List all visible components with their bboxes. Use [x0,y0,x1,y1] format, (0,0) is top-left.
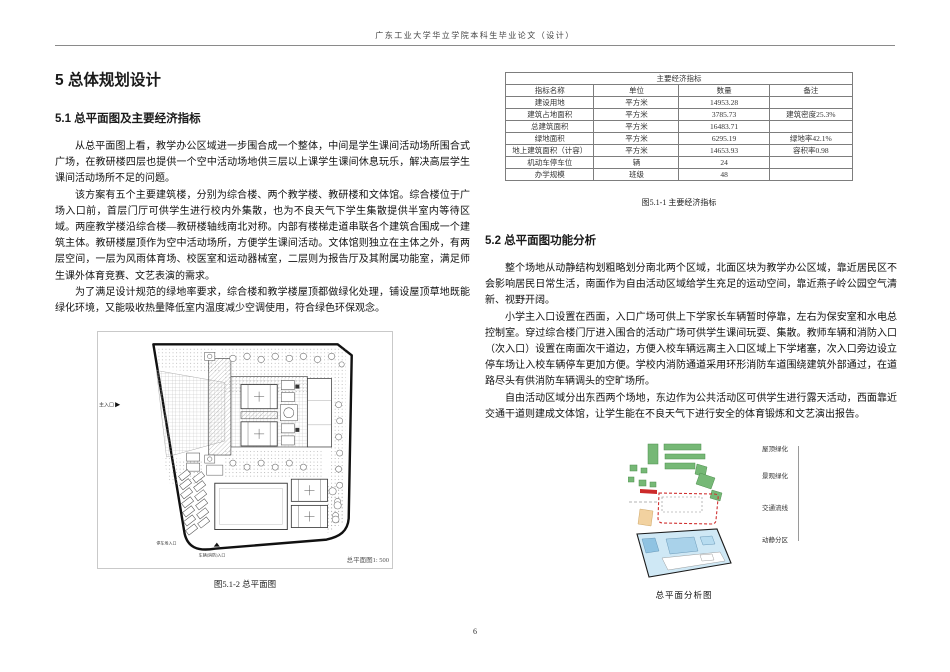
analysis-layers-drawing [628,437,738,587]
analysis-caption: 总平面分析图 [628,589,740,601]
table-cell: 6295.19 [679,133,769,145]
right-column: 主要经济指标 指标名称单位数量备注 建设用地平方米14953.28建筑占地面积平… [485,62,897,601]
table-cell: 3785.73 [679,109,769,121]
paragraph: 自由活动区域分出东西两个场地，东边作为公共活动区可供学生进行露天活动，西面靠近交… [485,391,897,423]
diagram-layer-label: 动静分区 [762,534,788,544]
siteplan-drawing: 主入口 停车场入口 车辆(消防)入口 [98,332,392,568]
diagram-layer-label: 交通流线 [762,502,788,512]
table-row: 地上建筑面积（计容）平方米14653.93容积率0.98 [506,145,853,157]
fire-lane-loop [658,493,718,524]
table-cell: 办学规模 [506,169,594,181]
table-cell: 平方米 [594,145,679,157]
east-building [307,379,331,447]
paragraph: 小学主入口设置在西面，入口广场可供上下学家长车辆暂时停靠，左右为保安室和水电总控… [485,310,897,391]
thesis-page: 广东工业大学华立学院本科生毕业论文（设计） 5 总体规划设计 5.1 总平面图及… [0,0,950,672]
table-header-cell: 数量 [679,85,769,97]
table-cell: 机动车停车位 [506,157,594,169]
table-header-cell: 指标名称 [506,85,594,97]
paragraph: 该方案有五个主要建筑楼，分别为综合楼、两个教学楼、教研楼和文体馆。综合楼位于广场… [55,188,470,285]
header-divider [55,45,895,46]
table-cell: 绿地率42.1% [769,133,852,145]
table-cell: 地上建筑面积（计容） [506,145,594,157]
siteplan-figure: 主入口 停车场入口 车辆(消防)入口 总平面图1: 500 [97,331,393,569]
parking-entrance-label: 停车场入口 [156,540,176,546]
main-entrance-arrow [115,402,120,407]
diagram-layer-label: 景观绿化 [762,470,788,480]
table-body: 主要经济指标 指标名称单位数量备注 建设用地平方米14953.28建筑占地面积平… [506,73,853,181]
parking-zone-blob [638,509,653,526]
table-cell: 14953.28 [679,97,769,109]
table-cell: 绿地面积 [506,133,594,145]
diagram-layer-label: 屋顶绿化 [762,443,788,453]
table-cell: 平方米 [594,121,679,133]
table-cell: 16483.71 [679,121,769,133]
table-cell [769,169,852,181]
table-cell: 24 [679,157,769,169]
section-5-2-heading: 5.2 总平面图功能分析 [485,232,897,248]
table-cell [769,97,852,109]
table-cell: 建筑占地面积 [506,109,594,121]
table-cell: 14653.93 [679,145,769,157]
table-row: 总建筑面积平方米16483.71 [506,121,853,133]
table-cell: 容积率0.98 [769,145,852,157]
table-cell: 48 [679,169,769,181]
table-cell: 平方米 [594,97,679,109]
main-entrance-bar [640,489,657,494]
table-cell: 平方米 [594,109,679,121]
analysis-diagram: 屋顶绿化景观绿化交通流线动静分区 [628,437,803,587]
roof-greening-layer [648,444,707,477]
table-cell: 平方米 [594,133,679,145]
diagram-labels: 屋顶绿化景观绿化交通流线动静分区 [740,437,796,587]
table-cell [769,121,852,133]
left-column: 5 总体规划设计 5.1 总平面图及主要经济指标 从总平面图上看，教学办公区域进… [55,64,470,590]
chapter-title: 5 总体规划设计 [55,68,470,90]
table-row: 机动车停车位辆24 [506,157,853,169]
table-cell: 辆 [594,157,679,169]
table-row: 办学规模班级48 [506,169,853,181]
table-cell [769,157,852,169]
paragraph: 从总平面图上看，教学办公区域进一步围合成一个整体，中间是学生课间活动场所围合式广… [55,139,470,188]
main-entrance-label: 主入口 [99,402,114,409]
section-5-1-heading: 5.1 总平面图及主要经济指标 [55,110,470,126]
label-bracket-line [798,446,799,541]
paragraph: 整个场地从动静结构划粗略划分南北两个区域，北面区块为教学办公区域，靠近居民区不会… [485,261,897,310]
table-cell: 总建筑面积 [506,121,594,133]
table-row: 建设用地平方米14953.28 [506,97,853,109]
table-header-cell: 备注 [769,85,852,97]
landscape-greening-layer [628,465,722,501]
table-title: 主要经济指标 [506,73,853,85]
table-header-cell: 单位 [594,85,679,97]
table-cell: 建设用地 [506,97,594,109]
zoning-layer [637,529,731,577]
table-row: 绿地面积平方米6295.19绿地率42.1% [506,133,853,145]
table-cell: 建筑密度25.3% [769,109,852,121]
table-header-row: 指标名称单位数量备注 [506,85,853,97]
vehicle-entrance-label: 车辆(消防)入口 [199,552,226,558]
table-row: 建筑占地面积平方米3785.73建筑密度25.3% [506,109,853,121]
main-building-slab [209,359,231,456]
economic-indicators-table: 主要经济指标 指标名称单位数量备注 建设用地平方米14953.28建筑占地面积平… [505,72,853,181]
paragraph: 为了满足设计规范的绿地率要求，综合楼和教学楼屋顶都做绿化处理，铺设屋顶草地既能绿… [55,285,470,317]
sports-field [215,483,287,529]
table-cell: 班级 [594,169,679,181]
page-header: 广东工业大学华立学院本科生毕业论文（设计） [0,30,950,41]
table-caption: 图5.1-1 主要经济指标 [505,197,853,208]
siteplan-scale-note: 总平面图1: 500 [347,554,389,564]
siteplan-caption: 图5.1-2 总平面图 [97,578,393,590]
page-number: 6 [0,627,950,636]
